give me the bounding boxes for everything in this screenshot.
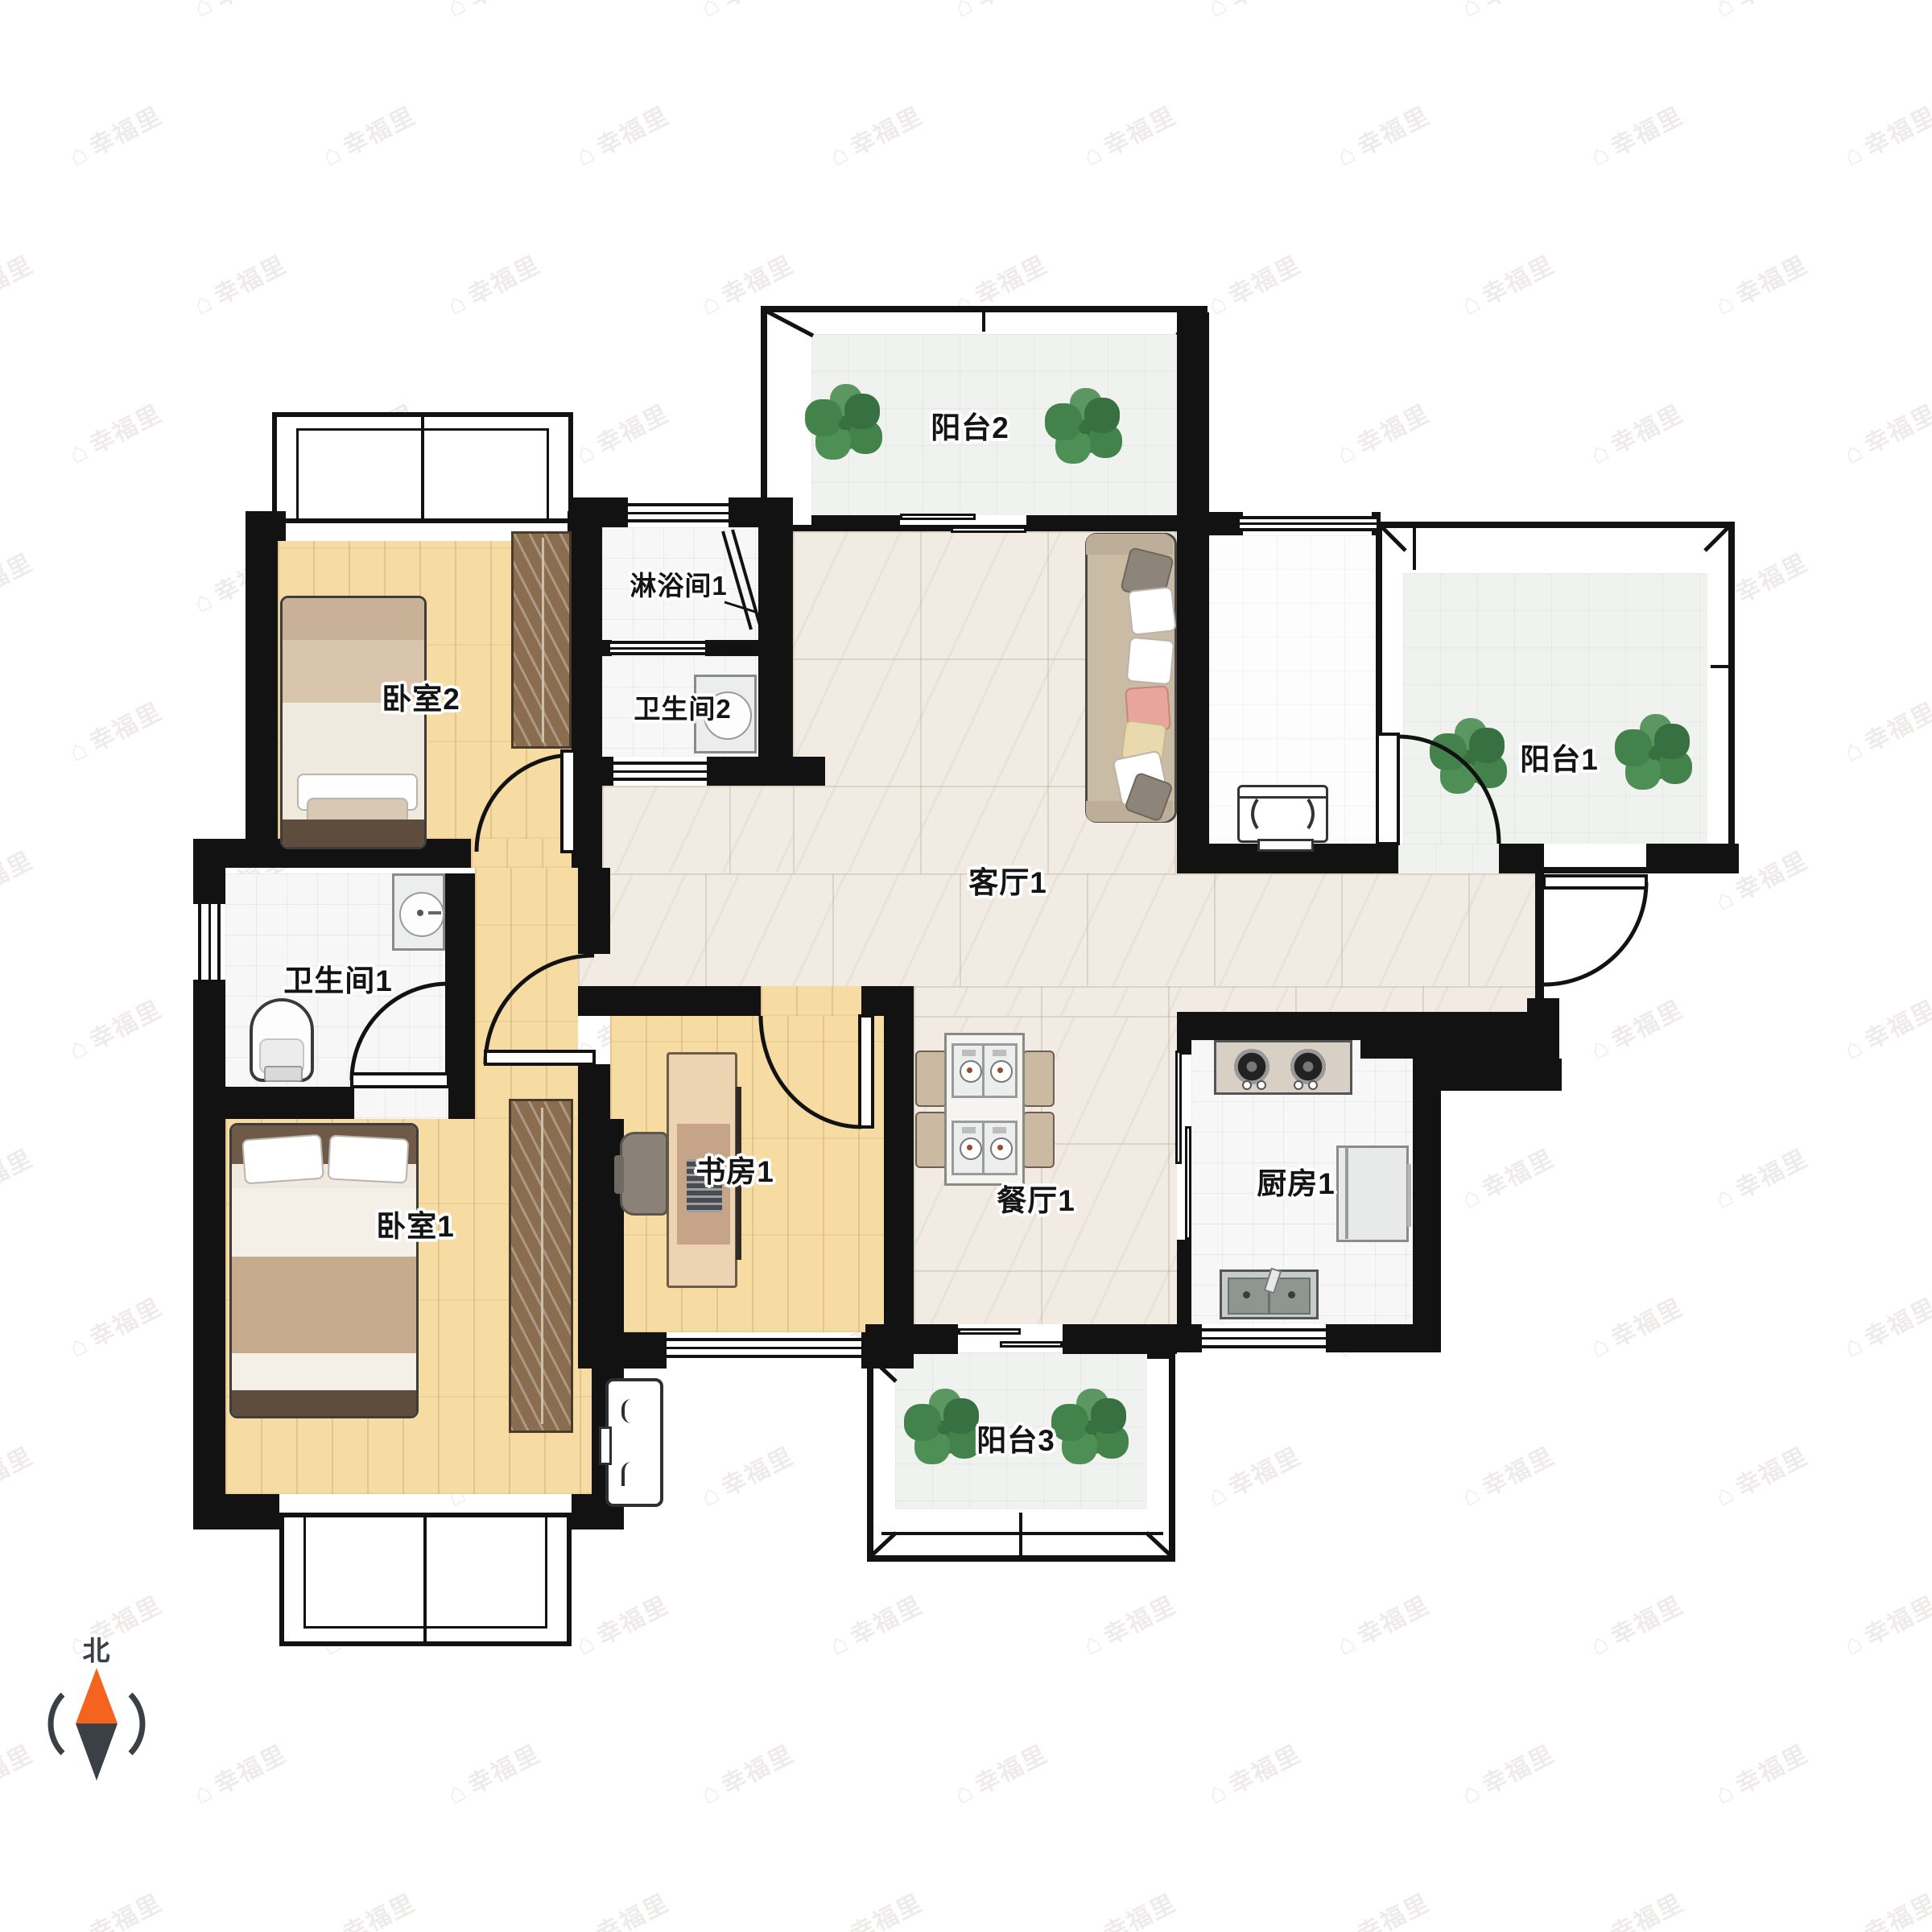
window-shower1 — [628, 503, 729, 522]
watermark-text: ⌂幸福里 — [0, 1436, 39, 1513]
wall-segment — [1177, 312, 1209, 873]
watermark-text: ⌂幸福里 — [62, 1883, 167, 1932]
wardrobe-bedroom1 — [509, 1099, 573, 1433]
plant-balcony3-left — [938, 1423, 949, 1435]
watermark-text: ⌂幸福里 — [0, 1138, 39, 1216]
wall-segment — [193, 1494, 279, 1529]
watermark-text: ⌂幸福里 — [1837, 394, 1932, 471]
door-arc-entry — [1544, 882, 1646, 985]
wall-segment — [578, 986, 761, 1016]
wall-segment — [246, 511, 286, 541]
watermark-text: ⌂幸福里 — [1455, 0, 1560, 24]
watermark-text: ⌂幸福里 — [569, 96, 675, 173]
watermark-text: ⌂幸福里 — [694, 1734, 799, 1811]
wall-segment — [861, 986, 914, 1016]
window-study — [667, 1338, 861, 1358]
watermark-text: ⌂幸福里 — [823, 1585, 928, 1662]
wall-segment — [572, 757, 613, 786]
wardrobe-bedroom2 — [511, 531, 572, 749]
watermark-text: ⌂幸福里 — [1583, 989, 1689, 1067]
plant-balcony3-right — [1085, 1423, 1096, 1435]
watermark-text: ⌂幸福里 — [1583, 1287, 1689, 1364]
room-label-balcony1: 阳台1 — [1520, 735, 1599, 778]
wall-segment — [1177, 1012, 1360, 1040]
watermark-text: ⌂幸福里 — [947, 0, 1053, 24]
watermark-text: ⌂幸福里 — [0, 840, 39, 918]
door-gap-bathroom2 — [613, 762, 707, 781]
washbasin-bathroom1 — [392, 873, 445, 951]
room-label-balcony2: 阳台2 — [931, 403, 1009, 447]
watermark-text: ⌂幸福里 — [1708, 1734, 1814, 1811]
floor-doorway-bedroom2 — [471, 839, 576, 868]
watermark-text: ⌂幸福里 — [1455, 1138, 1560, 1216]
door-gap-shower1 — [610, 641, 705, 655]
bay-window-bedroom2 — [272, 412, 573, 523]
wall-segment — [1535, 873, 1544, 998]
watermark-text: ⌂幸福里 — [62, 1585, 167, 1662]
desk-chair — [620, 1132, 668, 1216]
watermark-text: ⌂幸福里 — [1837, 96, 1932, 173]
wall-segment — [1063, 1324, 1177, 1354]
tv-stand — [1237, 785, 1328, 843]
watermark-text: ⌂幸福里 — [1455, 245, 1560, 322]
watermark-text: ⌂幸福里 — [569, 394, 675, 471]
bay-window-bedroom1-inner — [303, 1515, 547, 1629]
floor-doorway-study — [761, 986, 861, 1016]
window-bathroom1 — [198, 904, 221, 980]
watermark-text: ⌂幸福里 — [440, 1734, 546, 1811]
watermark-text: ⌂幸福里 — [440, 0, 546, 24]
watermark-text: ⌂幸福里 — [0, 1734, 39, 1811]
floor-living-west — [602, 786, 793, 873]
bed-bedroom1 — [229, 1123, 419, 1418]
wall-segment — [1177, 1324, 1202, 1352]
room-label-balcony3: 阳台3 — [976, 1416, 1055, 1459]
watermark-text: ⌂幸福里 — [0, 245, 39, 322]
watermark-text: ⌂幸福里 — [1837, 1883, 1932, 1932]
wall-segment — [811, 515, 900, 531]
watermark-text: ⌂幸福里 — [1201, 1734, 1307, 1811]
wall-segment — [445, 873, 475, 1087]
floor-balcony1 — [1403, 573, 1707, 844]
plant-balcony1-left — [1463, 753, 1475, 764]
watermark-text: ⌂幸福里 — [569, 1585, 675, 1662]
watermark-text: ⌂幸福里 — [1455, 1436, 1560, 1513]
watermark-text: ⌂幸福里 — [1708, 1138, 1814, 1216]
ac-outdoor-unit — [605, 1378, 663, 1507]
wall-segment — [1360, 1012, 1529, 1059]
watermark-text: ⌂幸福里 — [569, 1883, 675, 1932]
wall-segment — [705, 640, 758, 656]
wall-segment — [193, 1087, 354, 1119]
bay-window-bedroom2-inner — [296, 428, 549, 521]
watermark-text: ⌂幸福里 — [1330, 1883, 1435, 1932]
room-label-bedroom1: 卧室1 — [376, 1202, 455, 1245]
wall-segment — [578, 868, 610, 954]
watermark-text: ⌂幸福里 — [1837, 691, 1932, 769]
room-label-study1: 书房1 — [696, 1147, 774, 1191]
wall-segment — [1209, 512, 1243, 535]
room-label-dining1: 餐厅1 — [997, 1176, 1075, 1220]
wall-segment — [1646, 844, 1739, 873]
watermark-text: ⌂幸福里 — [1455, 1734, 1560, 1811]
floor-doorway-bathroom1 — [354, 1087, 448, 1119]
wall-segment — [707, 757, 825, 786]
compass-north-needle — [76, 1668, 118, 1724]
watermark-text: ⌂幸福里 — [1583, 1585, 1689, 1662]
watermark-text: ⌂幸福里 — [1330, 394, 1435, 471]
wall-segment — [246, 511, 278, 868]
wall-segment — [861, 1332, 914, 1368]
watermark-text: ⌂幸福里 — [62, 394, 167, 471]
watermark-text: ⌂幸福里 — [1330, 1585, 1435, 1662]
watermark-text: ⌂幸福里 — [187, 0, 292, 24]
watermark-text: ⌂幸福里 — [1708, 245, 1814, 322]
plant-balcony2-left — [839, 419, 850, 430]
floor-corridor — [578, 873, 1535, 986]
compass-label: 北 — [83, 1629, 111, 1669]
room-label-shower1: 淋浴间1 — [630, 564, 727, 603]
wall-segment — [572, 497, 602, 868]
watermark-text: ⌂幸福里 — [440, 245, 546, 322]
watermark-text: ⌂幸福里 — [694, 1436, 799, 1513]
wall-segment — [602, 497, 628, 527]
floor-hallway — [475, 868, 578, 1119]
fridge — [1336, 1146, 1409, 1242]
sliding-door-balcony2 — [900, 512, 1026, 535]
wall-segment — [1026, 515, 1177, 531]
watermark-text: ⌂幸福里 — [1837, 1287, 1932, 1364]
wall-segment — [884, 1016, 914, 1368]
window-foyer — [1240, 516, 1377, 531]
room-label-kitchen1: 厨房1 — [1257, 1159, 1335, 1203]
watermark-text: ⌂幸福里 — [1708, 0, 1814, 24]
wall-segment — [1413, 1059, 1441, 1352]
watermark-text: ⌂幸福里 — [823, 96, 928, 173]
wall-segment — [1499, 844, 1544, 873]
wall-segment — [576, 839, 602, 868]
door-leaf-entry — [1544, 876, 1646, 888]
watermark-text: ⌂幸福里 — [823, 1883, 928, 1932]
stove — [1214, 1040, 1352, 1095]
wall-segment — [1441, 1059, 1562, 1091]
wall-segment — [448, 1087, 475, 1119]
sliding-door-kitchen — [1174, 1051, 1193, 1240]
watermark-text: ⌂幸福里 — [316, 96, 421, 173]
sliding-door-balcony3 — [958, 1327, 1063, 1349]
room-label-living1: 客厅1 — [968, 858, 1047, 902]
compass-south-needle — [76, 1724, 118, 1781]
wall-segment — [193, 1119, 225, 1529]
watermark-text: ⌂幸福里 — [1201, 0, 1307, 24]
compass-icon — [51, 1668, 142, 1781]
room-label-bathroom2: 卫生间2 — [634, 687, 731, 726]
room-label-bedroom2: 卧室2 — [382, 675, 460, 718]
watermark-text: ⌂幸福里 — [1330, 96, 1435, 173]
toilet — [250, 998, 314, 1082]
floor-doorway-balcony1 — [1398, 844, 1499, 873]
floorplan-page: { "floorplan": { "watermark": { "text": … — [0, 0, 1932, 1932]
window-kitchen — [1202, 1328, 1326, 1348]
plant-balcony1-right — [1649, 749, 1660, 760]
bay-window-bedroom1 — [279, 1513, 572, 1646]
watermark-text: ⌂幸福里 — [694, 0, 799, 24]
wall-segment — [1177, 1240, 1191, 1324]
watermark-text: ⌂幸福里 — [1837, 1585, 1932, 1662]
kitchen-sink — [1220, 1269, 1319, 1319]
watermark-text: ⌂幸福里 — [1076, 96, 1182, 173]
watermark-text: ⌂幸福里 — [187, 245, 292, 322]
watermark-text: ⌂幸福里 — [1201, 245, 1307, 322]
watermark-text: ⌂幸福里 — [62, 989, 167, 1067]
watermark-text: ⌂幸福里 — [0, 543, 39, 620]
wall-segment — [193, 844, 225, 904]
wall-segment — [758, 497, 793, 786]
room-label-bathroom1: 卫生间1 — [283, 956, 393, 1000]
watermark-text: ⌂幸福里 — [187, 1734, 292, 1811]
watermark-text: ⌂幸福里 — [1583, 1883, 1689, 1932]
watermark-text: ⌂幸福里 — [947, 1734, 1053, 1811]
watermark-text: ⌂幸福里 — [1583, 394, 1689, 471]
tv-screen — [1257, 839, 1314, 852]
dining-table-set — [915, 1033, 1055, 1186]
watermark-text: ⌂幸福里 — [1583, 96, 1689, 173]
plant-balcony2-right — [1079, 423, 1090, 434]
watermark-text: ⌂幸福里 — [1201, 1436, 1307, 1513]
watermark-text: ⌂幸福里 — [1837, 989, 1932, 1067]
watermark-text: ⌂幸福里 — [0, 0, 39, 24]
watermark-text: ⌂幸福里 — [1076, 1883, 1182, 1932]
sofa — [1085, 533, 1177, 823]
watermark-text: ⌂幸福里 — [62, 691, 167, 769]
watermark-text: ⌂幸福里 — [316, 1883, 421, 1932]
watermark-text: ⌂幸福里 — [62, 1287, 167, 1364]
watermark-text: ⌂幸福里 — [62, 96, 167, 173]
watermark-text: ⌂幸福里 — [1708, 1436, 1814, 1513]
bed-bedroom2 — [280, 596, 427, 849]
watermark-text: ⌂幸福里 — [1076, 1585, 1182, 1662]
